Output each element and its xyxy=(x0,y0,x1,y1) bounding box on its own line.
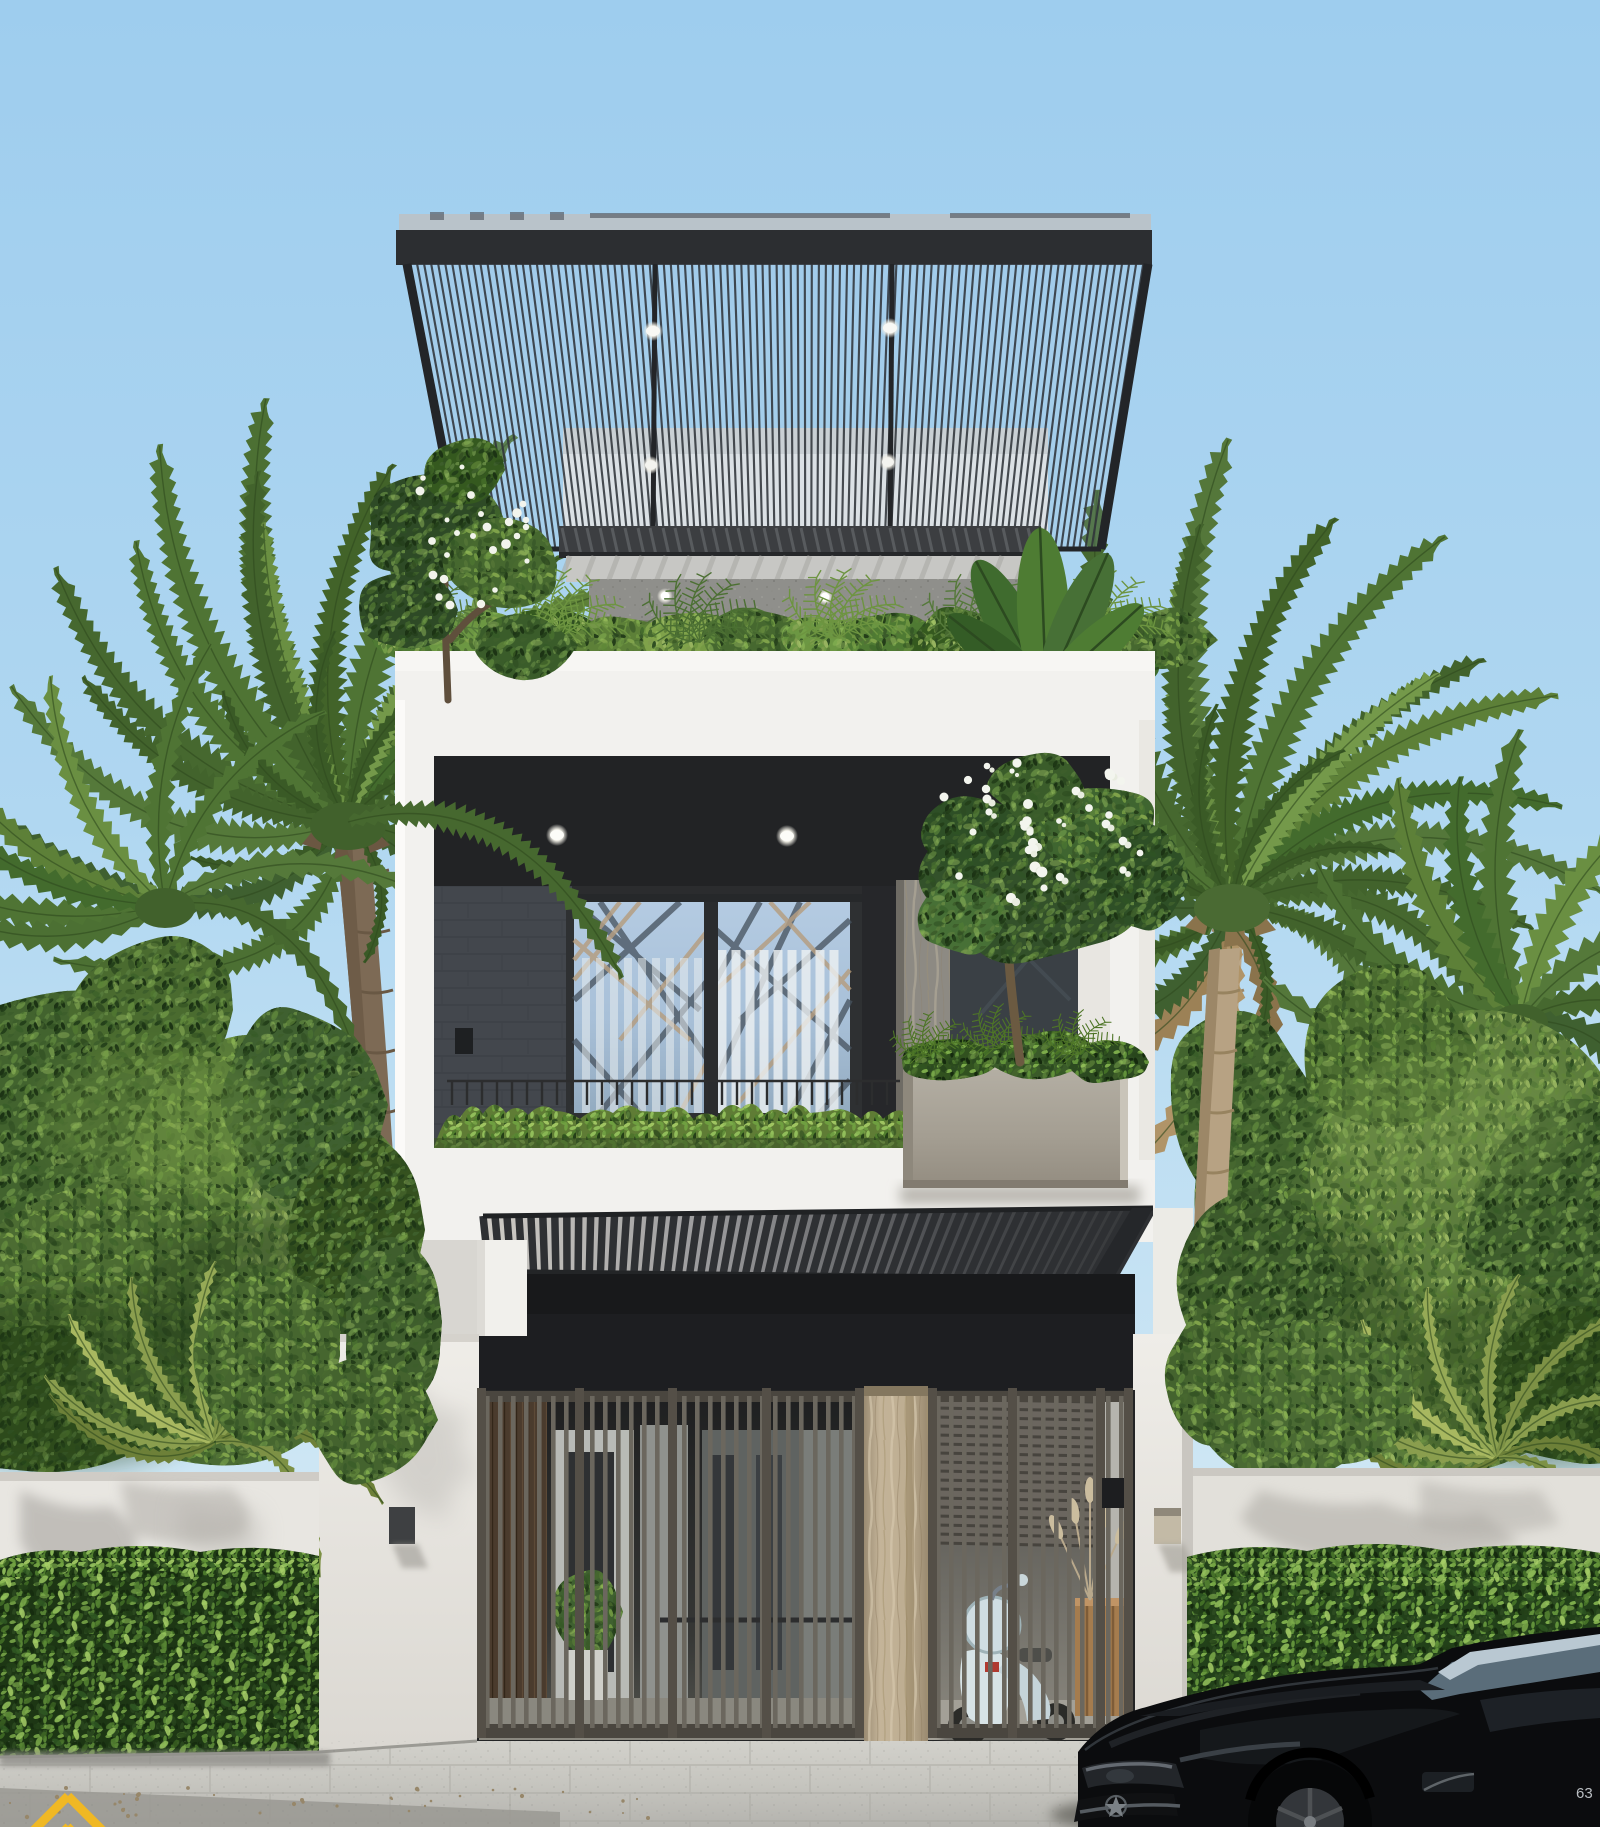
svg-text:63: 63 xyxy=(1576,1785,1593,1802)
